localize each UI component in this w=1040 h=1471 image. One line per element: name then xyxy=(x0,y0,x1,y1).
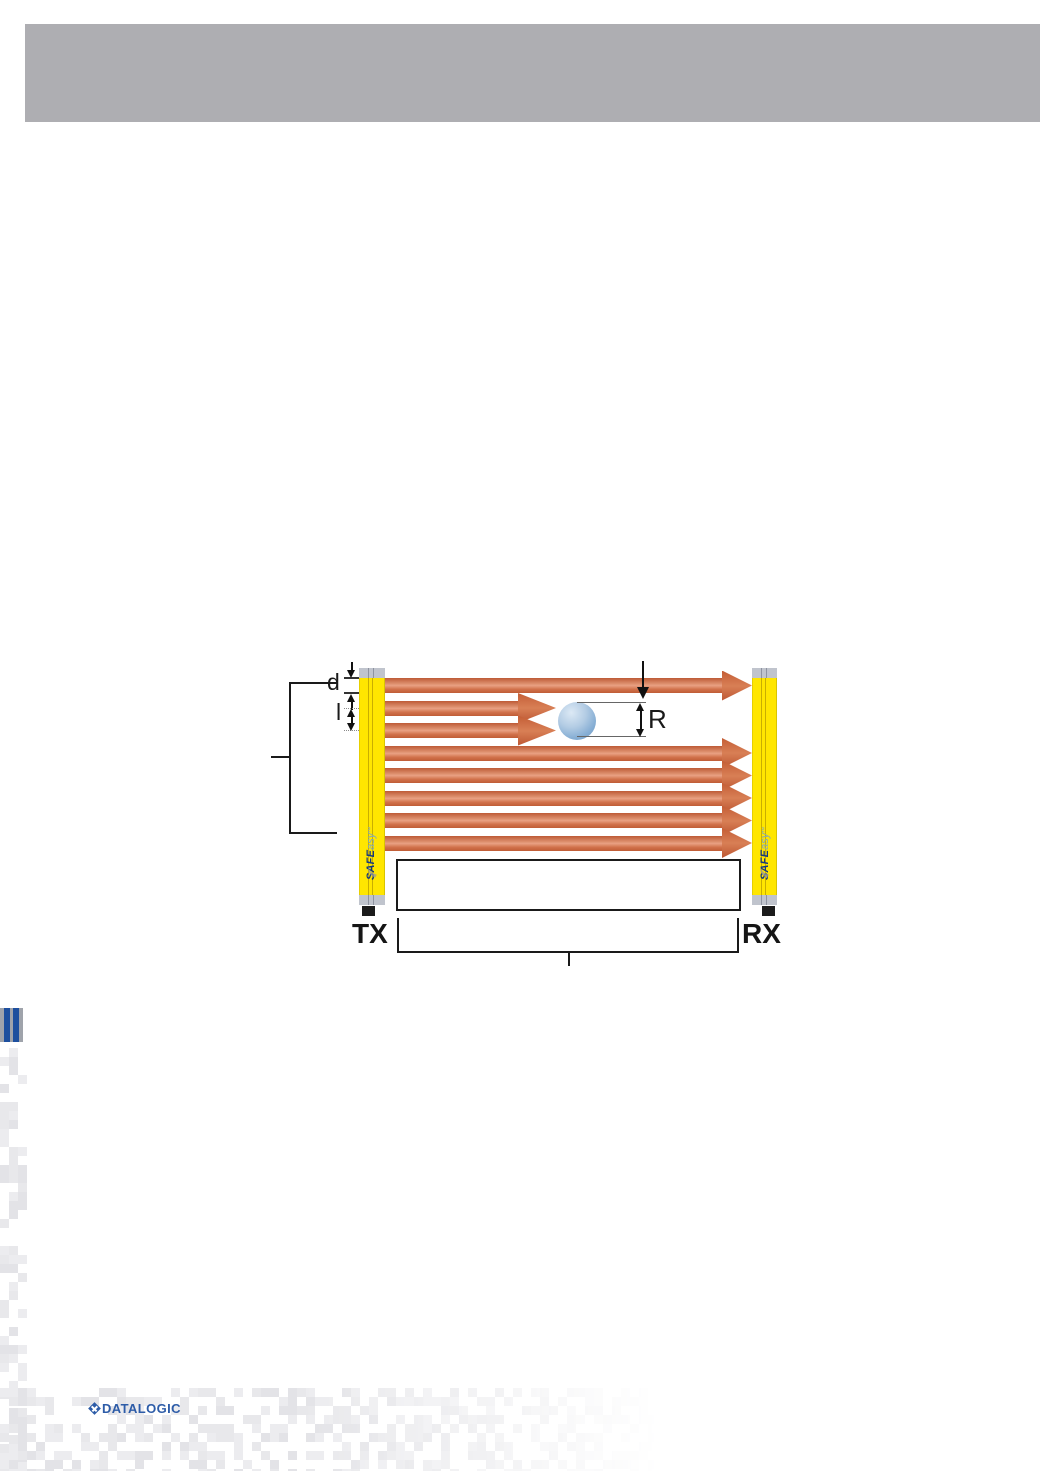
light-beam-shaft xyxy=(385,701,518,716)
distance-bracket-tick xyxy=(568,951,570,966)
tx-label: TX xyxy=(352,920,388,948)
brand-light-text: asy xyxy=(365,833,377,850)
pointer-arrow-shaft xyxy=(642,661,644,688)
rx-bottom-cap xyxy=(752,895,777,905)
light-beam-arrowhead-icon xyxy=(722,671,752,701)
cap-separator xyxy=(761,895,762,905)
datalogic-swoosh-icon xyxy=(754,864,774,880)
cap-separator xyxy=(373,668,374,678)
rx-foot xyxy=(762,906,775,916)
cap-separator xyxy=(368,895,369,905)
tx-bottom-cap xyxy=(359,895,385,905)
l-label: l xyxy=(336,701,341,724)
cap-separator xyxy=(373,895,374,905)
pointer-arrow-down-icon xyxy=(637,687,649,699)
brand-tm-text: ™ xyxy=(762,827,768,833)
cap-separator xyxy=(766,895,767,905)
brand-light-text: asy xyxy=(759,833,771,850)
light-beam-shaft xyxy=(385,746,722,761)
light-beam-shaft xyxy=(385,813,722,828)
distance-bracket xyxy=(397,918,739,953)
section-edge-mark xyxy=(0,1008,23,1042)
l-arrow-down-icon xyxy=(347,723,355,731)
light-beam-shaft xyxy=(385,768,722,783)
d-label: d xyxy=(327,671,340,694)
cap-separator xyxy=(368,668,369,678)
cap-separator xyxy=(766,668,767,678)
test-object-ball xyxy=(558,702,596,740)
bracket-middle-tick xyxy=(271,756,291,758)
light-beam-arrowhead-icon xyxy=(518,716,556,746)
mark-stripe xyxy=(19,1008,23,1042)
bracket-vertical-line xyxy=(289,682,291,834)
tx-brand-label: SAFEasy™ xyxy=(363,760,379,880)
rx-brand-label: SAFEasy™ xyxy=(757,760,773,880)
bracket-bottom-line xyxy=(289,832,337,834)
r-arrow-shaft xyxy=(640,708,642,731)
rx-label: RX xyxy=(742,920,781,948)
r-label: R xyxy=(648,706,667,732)
datalogic-logo-text: DATALOGIC xyxy=(102,1402,181,1415)
tx-foot xyxy=(362,906,375,916)
datalogic-logo: DATALOGIC xyxy=(90,1401,181,1416)
cap-separator xyxy=(761,668,762,678)
light-beam-arrowhead-icon xyxy=(722,828,752,858)
brand-tm-text: ™ xyxy=(368,827,374,833)
r-arrow-down-icon xyxy=(636,729,644,737)
light-beam-shaft xyxy=(385,723,518,738)
datalogic-mark-icon xyxy=(88,1402,101,1415)
datalogic-swoosh-icon xyxy=(362,864,382,880)
light-beam-shaft xyxy=(385,836,722,851)
manual-page: d l R xyxy=(0,0,1040,1471)
d-arrow-down-icon xyxy=(347,670,355,678)
rx-top-cap xyxy=(752,668,777,678)
callout-box xyxy=(396,859,741,911)
light-beam-shaft xyxy=(385,678,722,693)
light-beam-shaft xyxy=(385,791,722,806)
light-curtain-diagram: d l R xyxy=(0,0,1040,1471)
tx-top-cap xyxy=(359,668,385,678)
